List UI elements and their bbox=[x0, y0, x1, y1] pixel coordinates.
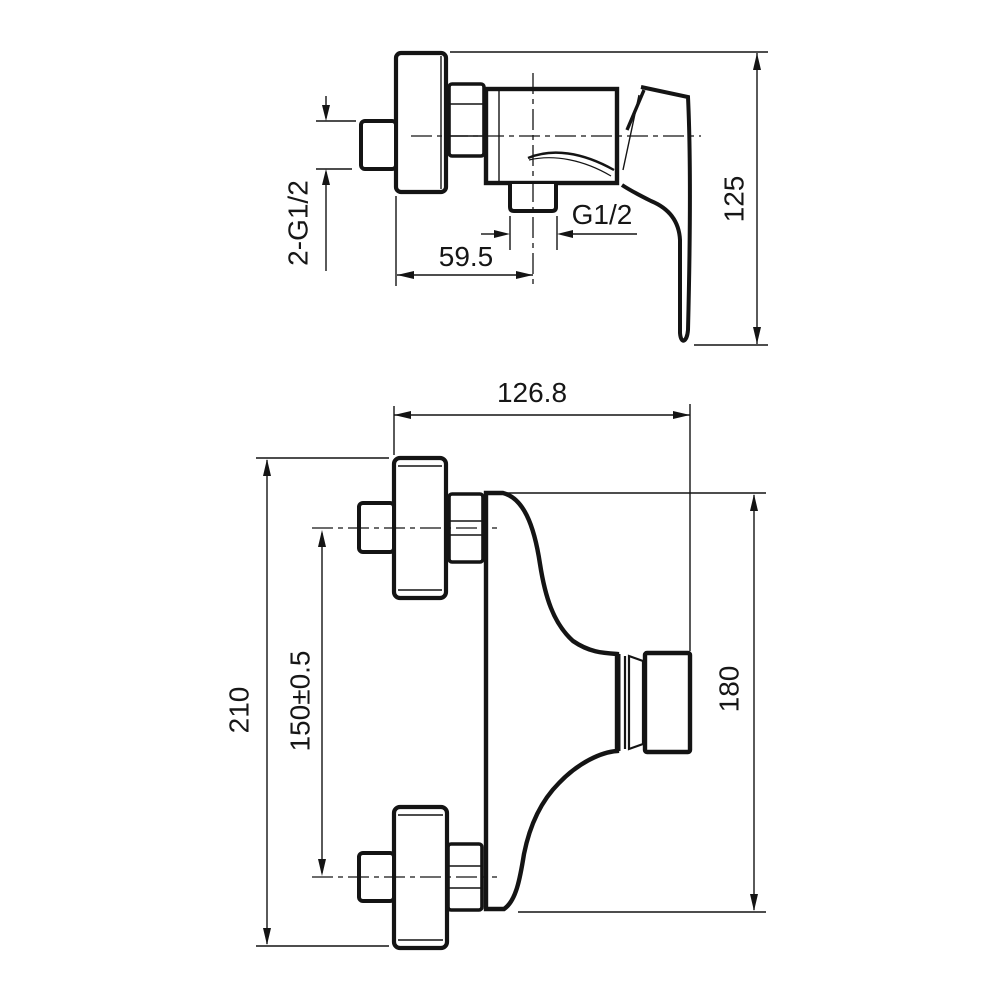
dim-label-59-5: 59.5 bbox=[439, 241, 494, 272]
dim-label-g12: G1/2 bbox=[572, 199, 633, 230]
dim-label-180: 180 bbox=[713, 666, 744, 713]
dim-label-150: 150±0.5 bbox=[284, 650, 315, 751]
valve-body-front bbox=[486, 493, 617, 909]
technical-drawing-page: 125 bbox=[0, 0, 1000, 1000]
dim-label-125: 125 bbox=[718, 176, 749, 223]
dim-label-126-8: 126.8 bbox=[497, 377, 567, 408]
handle-hub-front bbox=[619, 653, 690, 752]
hex-nut-side bbox=[449, 84, 484, 156]
side-view: 125 bbox=[282, 52, 768, 345]
dimension-outlet-thread: G1/2 bbox=[481, 199, 637, 250]
faucet-dimension-drawing: 125 bbox=[0, 0, 1000, 1000]
wall-flange-side bbox=[396, 53, 446, 192]
dim-label-210: 210 bbox=[223, 687, 254, 734]
front-view: 126.8 180 bbox=[223, 377, 766, 948]
handle-neck-inner-line bbox=[623, 95, 639, 170]
dimension-inlet-thread: 2-G1/2 bbox=[282, 96, 356, 271]
dimension-inlet-spacing-150: 150±0.5 bbox=[284, 530, 326, 876]
dim-label-2-g12: 2-G1/2 bbox=[282, 180, 313, 266]
inlet-connector-side bbox=[361, 121, 396, 169]
